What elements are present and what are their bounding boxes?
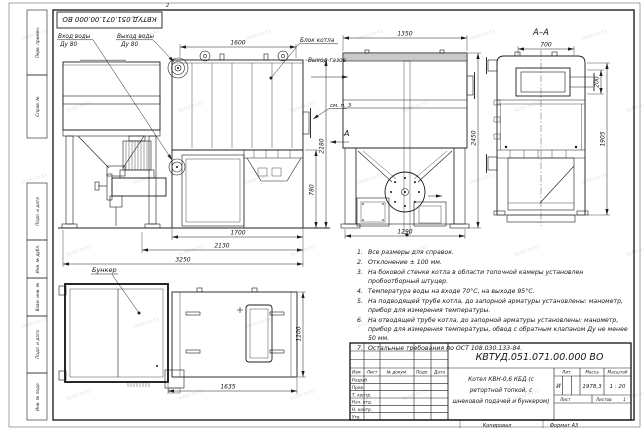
tb-row-utv: Утв. <box>352 414 361 419</box>
tb-sheets-label: Листов <box>595 397 612 402</box>
field-perv-primen: Перв. примен. <box>35 27 40 58</box>
watermark-text: kotel-kv.kz <box>357 28 384 42</box>
note-item: 6.На отводящей трубе котла, до запорной … <box>357 317 630 344</box>
watermark-text: kotel-kv.kz <box>66 100 93 114</box>
watermark-text: kotel-kv.kz <box>469 28 496 42</box>
note-text: Все размеры для справок. <box>368 249 630 258</box>
note-text: Отклонение ± 100 мм. <box>368 259 630 268</box>
note-number: 5. <box>357 298 368 316</box>
tb-col-list: Лист <box>366 370 378 375</box>
view-section-aa: А–А <box>487 28 595 226</box>
tb-row-tkontr: Т. контр. <box>352 392 371 397</box>
field-inv-podl: Инв. № подл. <box>35 382 40 411</box>
section-title: А–А <box>532 28 549 38</box>
watermark-text: kotel-kv.kz <box>626 100 644 114</box>
label-water-outlet: Выход воды <box>117 34 154 40</box>
dim-1290: 1290 <box>397 229 412 236</box>
margin-fields: Перв. примен. Справ. № Подп. и дата Инв.… <box>27 10 47 420</box>
bottom-captions: Копировал Формат А3 <box>460 420 578 429</box>
watermark-text: kotel-kv.kz <box>178 388 205 402</box>
watermark-text: kotel-kv.kz <box>469 172 496 186</box>
tb-lit-label: Лит. <box>561 370 572 375</box>
watermark-text: kotel-kv.kz <box>581 28 608 42</box>
note-number: 6. <box>357 317 368 344</box>
tb-scale-value: 1 : 20 <box>610 384 626 390</box>
label-water-inlet-du: Ду 80 <box>59 42 77 48</box>
watermark-text: kotel-kv.kz <box>402 388 429 402</box>
watermark-text: kotel-kv.kz <box>290 244 317 258</box>
tb-col-podp: Подп. <box>416 370 429 375</box>
tb-scale-label: Масштаб <box>608 370 628 375</box>
tb-sheet-label: Лист <box>559 397 571 402</box>
dim-1600: 1600 <box>230 40 245 47</box>
stamp-designation-text: КВТУД.051.071.00.000 ВО <box>62 15 157 23</box>
drawing-sheet: kotel-kv.kzkotel-kv.kzkotel-kv.kzkotel-k… <box>0 0 644 430</box>
field-vzam-inv: Взам. инв. № <box>35 282 40 311</box>
note-text: Остальные требования по ОСТ 108.030.133-… <box>368 345 630 354</box>
note-item: 2.Отклонение ± 100 мм. <box>357 259 630 268</box>
field-podp-data-2: Подп. и дата <box>35 330 40 359</box>
note-item: 7.Остальные требования по ОСТ 108.030.13… <box>357 345 630 354</box>
note-item: 1.Все размеры для справок. <box>357 249 630 258</box>
tb-row-nachotd: Нач. отд. <box>352 400 372 405</box>
watermark-text: kotel-kv.kz <box>21 172 48 186</box>
tb-col-data: Дата <box>433 370 445 375</box>
label-boiler-block: Блок котла <box>300 38 335 44</box>
note-text: На боковой стенке котла в области топочн… <box>368 269 630 287</box>
dim-3250: 3250 <box>175 257 190 264</box>
dim-1905: 1905 <box>600 131 607 146</box>
view-front: А <box>330 50 475 237</box>
drawing-canvas: kotel-kv.kzkotel-kv.kzkotel-kv.kzkotel-k… <box>0 0 644 430</box>
dim-2130: 2130 <box>214 243 229 250</box>
field-podp-data-1: Подп. и дата <box>35 197 40 226</box>
dim-780: 780 <box>309 184 316 196</box>
watermark-text: kotel-kv.kz <box>178 100 205 114</box>
tb-row-razrab: Разраб. <box>352 378 368 383</box>
watermark-text: kotel-kv.kz <box>245 172 272 186</box>
view-plan <box>59 284 297 393</box>
watermark-text: kotel-kv.kz <box>290 388 317 402</box>
tb-lit-value: И <box>556 383 561 390</box>
tb-col-izm: Изм. <box>352 370 362 375</box>
field-inv-dubl: Инв. № дубл. <box>35 245 40 274</box>
label-water-outlet-du: Ду 80 <box>120 42 138 48</box>
notes-list: 1.Все размеры для справок. 2.Отклонение … <box>357 249 630 355</box>
note-item: 4.Температура воды на входе 70°С, на вых… <box>357 288 630 297</box>
tb-col-docnum: № докум. <box>386 370 408 375</box>
view-arrow-a-label: А <box>343 129 349 138</box>
label-see-note-3: см. п. 3 <box>330 103 352 109</box>
note-text: Температура воды на входе 70°С, на выход… <box>368 288 630 297</box>
watermark-text: kotel-kv.kz <box>21 316 48 330</box>
watermark-text: kotel-kv.kz <box>66 388 93 402</box>
dim-1700: 1700 <box>230 230 245 237</box>
watermark-text: kotel-kv.kz <box>133 316 160 330</box>
dim-700: 700 <box>540 42 552 49</box>
label-gas-outlet: Выход газов <box>308 58 347 64</box>
tb-name-line1: Котел КВН-0,6 КБД (с <box>468 377 534 383</box>
tb-row-prov: Пров. <box>352 385 364 390</box>
dim-1635: 1635 <box>220 384 235 391</box>
field-sprav-no: Справ. № <box>35 96 40 117</box>
note-item: 3.На боковой стенке котла в области топо… <box>357 269 630 287</box>
watermark-text: kotel-kv.kz <box>402 100 429 114</box>
tb-mass-value: 1978,3 <box>582 384 602 390</box>
dim-1350: 1350 <box>397 31 412 38</box>
note-number: 3. <box>357 269 368 287</box>
watermark-text: kotel-kv.kz <box>66 244 93 258</box>
dim-1100: 1100 <box>296 326 303 341</box>
watermark-text: kotel-kv.kz <box>357 172 384 186</box>
label-bunker: Бункер <box>92 266 117 274</box>
watermark-text: kotel-kv.kz <box>514 100 541 114</box>
note-text: На отводящей трубе котла, до запорной ар… <box>368 317 630 344</box>
tb-row-nkontr: Н. контр. <box>352 407 372 412</box>
view-side-elevation <box>58 51 330 228</box>
note-number: 4. <box>357 288 368 297</box>
tb-name-line2: ретортной топкой, с <box>469 388 533 394</box>
note-number: 2. <box>357 259 368 268</box>
note-number: 1. <box>357 249 368 258</box>
tb-name-line3: шнековой подачей и бункером) <box>452 399 549 405</box>
tb-sheets-value: 1 <box>623 397 626 402</box>
note-number: 7. <box>357 345 368 354</box>
tb-mass-label: Масса <box>585 370 599 375</box>
watermark-text: kotel-kv.kz <box>245 28 272 42</box>
top-fold-mark: 2 <box>166 3 169 9</box>
caption-copied: Копировал <box>483 423 512 429</box>
dim-2180: 2180 <box>319 138 326 153</box>
note-text: На подводящей трубе котла, до запорной а… <box>368 298 630 316</box>
note-item: 5.На подводящей трубе котла, до запорной… <box>357 298 630 316</box>
top-designation-stamp: КВТУД.051.071.00.000 ВО <box>57 12 162 28</box>
callouts: Вход воды Ду 80 Выход воды Ду 80 Блок ко… <box>57 34 352 313</box>
dim-2450: 2450 <box>471 130 478 145</box>
caption-format: Формат А3 <box>550 423 578 429</box>
label-water-inlet: Вход воды <box>58 34 91 40</box>
dim-200: 200 <box>594 76 601 88</box>
